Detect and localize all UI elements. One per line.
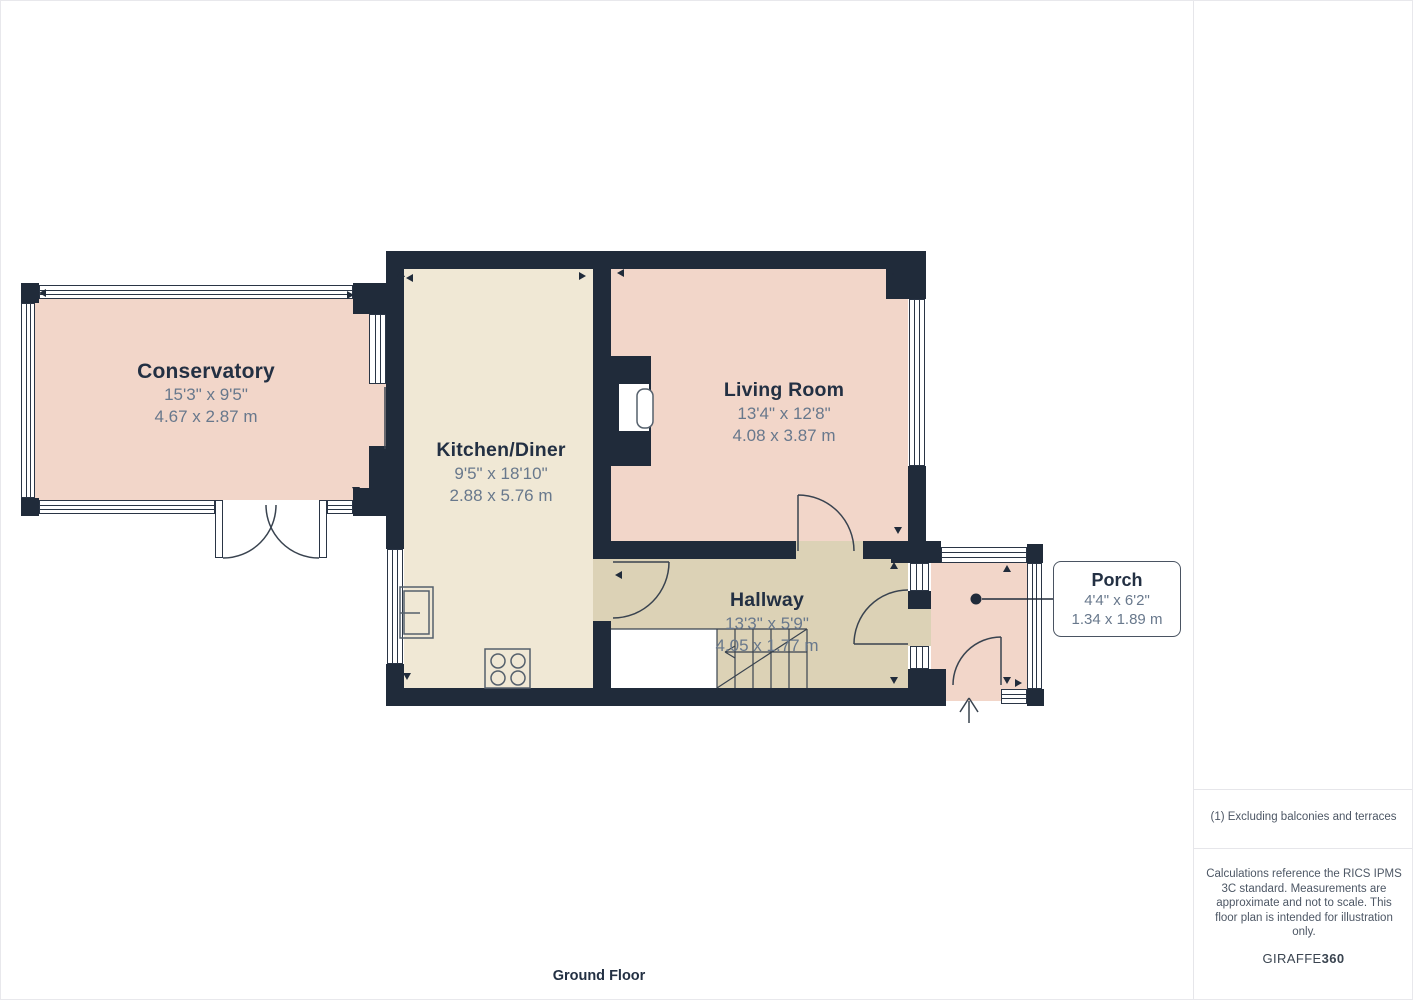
room-label-living-room: Living Room 13'4" x 12'8" 4.08 x 3.87 m bbox=[724, 378, 844, 446]
measure-tick bbox=[406, 274, 413, 282]
measure-tick bbox=[1003, 677, 1011, 684]
entry-arrow bbox=[960, 698, 978, 723]
measure-tick bbox=[615, 571, 622, 579]
sink-icon bbox=[400, 587, 433, 638]
hob-icon bbox=[485, 649, 530, 688]
living-room-door bbox=[798, 495, 854, 551]
room-name: Conservatory bbox=[137, 359, 275, 384]
room-label-kitchen-diner: Kitchen/Diner 9'5" x 18'10" 2.88 x 5.76 … bbox=[436, 438, 565, 506]
room-dim-metric: 4.08 x 3.87 m bbox=[724, 425, 844, 447]
porch-callout: Porch 4'4" x 6'2" 1.34 x 1.89 m bbox=[1053, 561, 1181, 637]
measure-tick bbox=[890, 677, 898, 684]
floorplan-canvas: Conservatory 15'3" x 9'5" 4.67 x 2.87 m … bbox=[0, 0, 1413, 1000]
measure-tick bbox=[347, 291, 354, 299]
room-dim-metric: 1.34 x 1.89 m bbox=[1054, 610, 1180, 629]
porch-leader bbox=[971, 594, 1054, 605]
room-dim-imperial: 15'3" x 9'5" bbox=[137, 384, 275, 406]
floorplan: Conservatory 15'3" x 9'5" 4.67 x 2.87 m … bbox=[1, 1, 1193, 1000]
sidebar-divider bbox=[1193, 848, 1413, 849]
measure-tick bbox=[352, 487, 360, 494]
measure-tick bbox=[1003, 565, 1011, 572]
measure-tick bbox=[579, 272, 586, 280]
room-dim-imperial: 9'5" x 18'10" bbox=[436, 463, 565, 485]
area-footnote: (1) Excluding balconies and terraces bbox=[1193, 811, 1413, 823]
measure-tick bbox=[397, 270, 405, 277]
room-dim-metric: 4.67 x 2.87 m bbox=[137, 406, 275, 428]
room-dim-imperial: 13'3" x 5'9" bbox=[715, 613, 818, 635]
disclaimer-text: Calculations reference the RICS IPMS 3C … bbox=[1204, 867, 1404, 940]
room-name: Kitchen/Diner bbox=[436, 438, 565, 463]
room-dim-metric: 2.88 x 5.76 m bbox=[436, 485, 565, 507]
plan-overlay bbox=[1, 1, 1193, 1000]
brand-logo: GIRAFFE360 bbox=[1193, 951, 1413, 966]
floor-label: Ground Floor bbox=[499, 968, 699, 984]
room-dim-imperial: 4'4" x 6'2" bbox=[1054, 591, 1180, 610]
brand-bold: 360 bbox=[1322, 951, 1345, 966]
measure-tick bbox=[887, 270, 894, 278]
sidebar-divider bbox=[1193, 789, 1413, 790]
measure-tick bbox=[1015, 679, 1022, 687]
info-sidebar: Approximate total area(1) 603 ft² 55.9 m… bbox=[1193, 1, 1413, 1000]
french-door-arc bbox=[266, 505, 319, 558]
room-name: Hallway bbox=[715, 588, 818, 613]
room-label-conservatory: Conservatory 15'3" x 9'5" 4.67 x 2.87 m bbox=[137, 359, 275, 427]
room-name: Living Room bbox=[724, 378, 844, 403]
measure-tick bbox=[890, 562, 898, 569]
brand-regular: GIRAFFE bbox=[1262, 951, 1321, 966]
french-door-arc bbox=[223, 505, 276, 558]
hall-porch-door bbox=[854, 590, 908, 644]
room-label-hallway: Hallway 13'3" x 5'9" 4.05 x 1.77 m bbox=[715, 588, 818, 656]
room-dim-metric: 4.05 x 1.77 m bbox=[715, 635, 818, 657]
measure-tick bbox=[894, 527, 902, 534]
measure-tick bbox=[39, 289, 46, 297]
room-name: Porch bbox=[1054, 569, 1180, 591]
fireplace-icon bbox=[637, 389, 653, 428]
room-dim-imperial: 13'4" x 12'8" bbox=[724, 403, 844, 425]
measure-tick bbox=[403, 673, 411, 680]
front-door bbox=[953, 637, 1001, 685]
measure-tick bbox=[617, 269, 624, 277]
